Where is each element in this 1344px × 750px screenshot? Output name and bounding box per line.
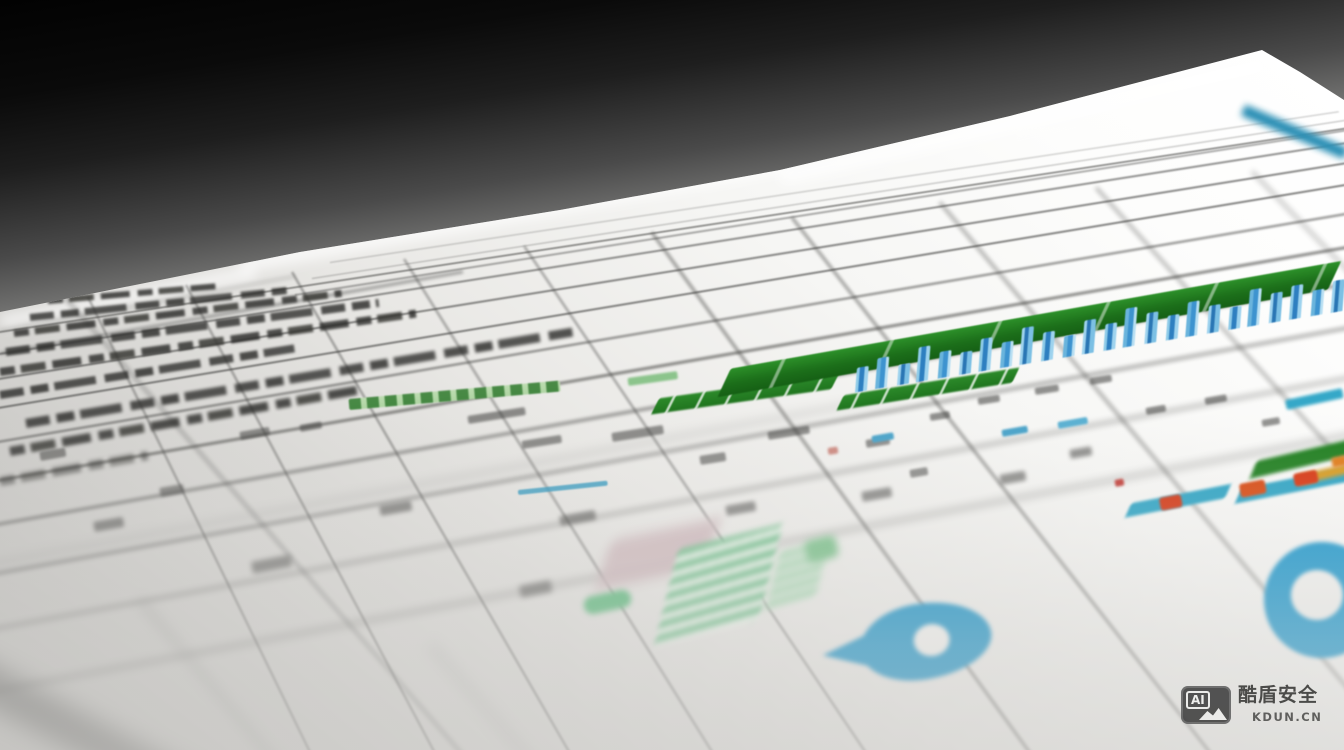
photo-canvas: AI 酷盾安全 KDUN.CN bbox=[0, 0, 1344, 750]
cell-text-mark bbox=[977, 395, 1000, 405]
light-green-strip bbox=[349, 381, 561, 410]
cell-text-mark bbox=[767, 425, 810, 439]
bar bbox=[1144, 311, 1158, 344]
cell-text-mark bbox=[725, 501, 756, 516]
cell-text-mark bbox=[699, 452, 726, 465]
cell-text-mark bbox=[999, 471, 1026, 485]
bar bbox=[978, 337, 992, 372]
grid-row-line bbox=[312, 118, 1344, 280]
bar bbox=[1228, 305, 1242, 330]
cell-text-mark bbox=[251, 554, 293, 573]
bar bbox=[1247, 288, 1262, 327]
cell-text-mark bbox=[1034, 384, 1059, 395]
donut-hole bbox=[1291, 570, 1343, 620]
bar bbox=[1311, 289, 1325, 317]
cyan-band bbox=[1285, 388, 1344, 410]
cell-text-mark bbox=[1089, 375, 1112, 385]
data-dot-red bbox=[1114, 478, 1124, 487]
ai-badge-label: AI bbox=[1186, 691, 1210, 709]
cell-text-mark bbox=[827, 446, 838, 454]
bar bbox=[897, 363, 910, 386]
watermark-text: 酷盾安全 KDUN.CN bbox=[1238, 686, 1322, 724]
cell-text-mark bbox=[93, 517, 124, 532]
cell-text-mark bbox=[1261, 417, 1280, 427]
cell-text-mark bbox=[519, 580, 553, 598]
cell-text-mark bbox=[521, 435, 562, 449]
blurred-foreground-line bbox=[137, 598, 478, 750]
bar bbox=[1103, 322, 1117, 351]
cell-text-mark bbox=[909, 467, 928, 478]
teardrop-marker bbox=[817, 593, 997, 695]
bar bbox=[1269, 292, 1283, 324]
cell-text-mark bbox=[559, 510, 596, 526]
data-dot-orange bbox=[1331, 455, 1344, 468]
bar bbox=[875, 356, 889, 389]
bar bbox=[1123, 307, 1138, 348]
bar bbox=[1289, 284, 1304, 320]
bar bbox=[916, 345, 931, 382]
bar bbox=[1185, 300, 1200, 337]
donut-chart bbox=[1264, 542, 1344, 658]
blurred-text-line bbox=[0, 451, 149, 486]
bar bbox=[1207, 304, 1221, 334]
brand-domain: KDUN.CN bbox=[1238, 710, 1322, 724]
blue-dash-mark bbox=[1001, 426, 1028, 437]
grid-column-line bbox=[523, 246, 1039, 750]
bar bbox=[855, 366, 869, 393]
bar bbox=[1166, 314, 1180, 341]
bar bbox=[959, 351, 973, 376]
watermark: AI 酷盾安全 KDUN.CN bbox=[1181, 686, 1322, 724]
cell-text-mark bbox=[1069, 446, 1092, 459]
cell-text-mark bbox=[159, 484, 184, 497]
brand-name: 酷盾安全 bbox=[1238, 686, 1322, 706]
bar bbox=[1041, 331, 1055, 362]
blurred-foreground-line bbox=[426, 642, 709, 750]
bar bbox=[1082, 319, 1097, 355]
cell-text-mark bbox=[299, 421, 322, 432]
paper-sheet bbox=[0, 0, 1344, 750]
cell-underline-cyan bbox=[518, 481, 608, 495]
ai-image-badge-icon: AI bbox=[1181, 686, 1231, 724]
bar bbox=[1000, 341, 1014, 369]
data-dot-red bbox=[1159, 494, 1183, 511]
cell-text-mark bbox=[861, 487, 892, 502]
bar bbox=[1063, 334, 1077, 358]
bar bbox=[1019, 326, 1034, 365]
cell-text-mark bbox=[929, 411, 950, 421]
bar bbox=[938, 350, 952, 379]
bar bbox=[1331, 279, 1344, 313]
small-green-strip bbox=[627, 371, 678, 386]
